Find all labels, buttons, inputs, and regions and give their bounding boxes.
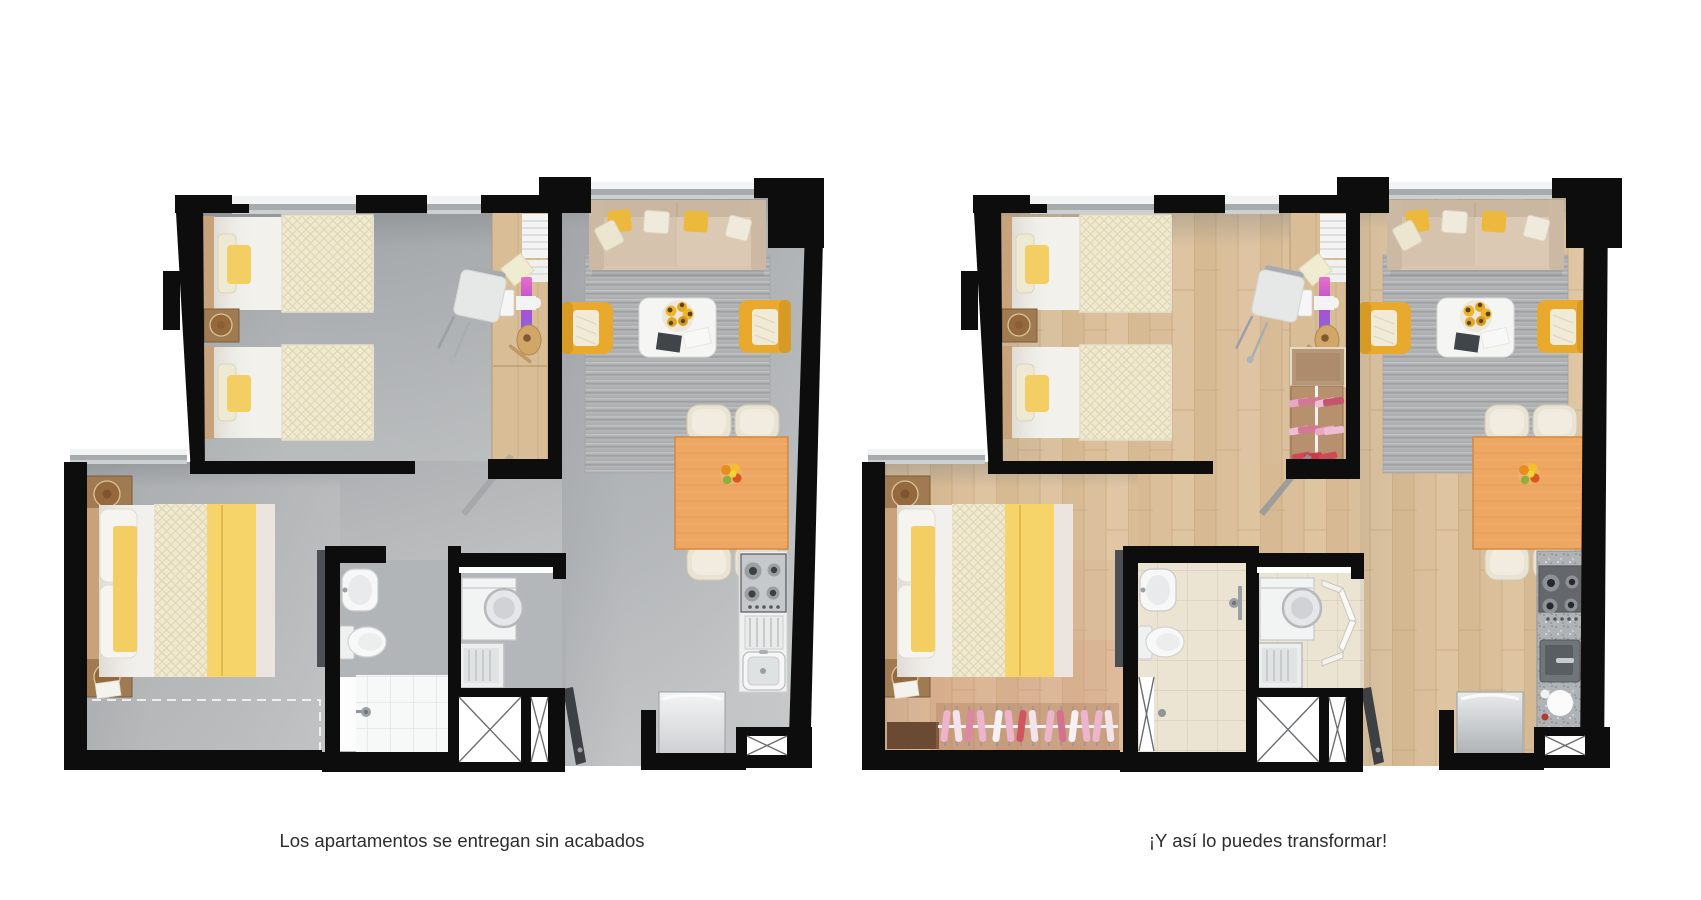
svg-text:¡Y así lo puedes transformar!: ¡Y así lo puedes transformar! <box>1149 830 1387 851</box>
svg-text:Los apartamentos se entregan s: Los apartamentos se entregan sin acabado… <box>279 830 644 851</box>
